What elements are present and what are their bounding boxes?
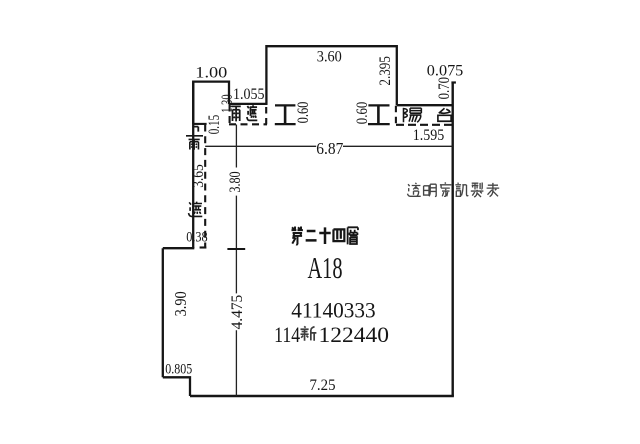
- svg-text:3.90: 3.90: [171, 291, 190, 316]
- svg-text:0.60: 0.60: [295, 101, 312, 123]
- svg-text:0.15: 0.15: [206, 115, 223, 135]
- svg-text:1.055: 1.055: [233, 86, 265, 103]
- svg-text:A18: A18: [308, 250, 343, 285]
- svg-text:4.475: 4.475: [229, 295, 246, 330]
- svg-text:7.25: 7.25: [310, 377, 336, 394]
- svg-text:3.80: 3.80: [227, 171, 244, 192]
- svg-text:0.38: 0.38: [186, 230, 208, 246]
- svg-text:3.60: 3.60: [317, 49, 342, 66]
- svg-text:0.70: 0.70: [436, 77, 453, 100]
- svg-text:1.595: 1.595: [413, 127, 445, 144]
- svg-text:122440: 122440: [319, 322, 390, 347]
- svg-text:0.60: 0.60: [354, 101, 371, 124]
- svg-text:3.65: 3.65: [190, 164, 207, 188]
- svg-text:6.87: 6.87: [316, 139, 343, 158]
- svg-text:2.395: 2.395: [377, 56, 394, 86]
- svg-text:114: 114: [274, 322, 300, 347]
- svg-text:0.805: 0.805: [165, 362, 192, 378]
- svg-text:41140333: 41140333: [291, 298, 375, 323]
- svg-text:1.00: 1.00: [195, 65, 227, 82]
